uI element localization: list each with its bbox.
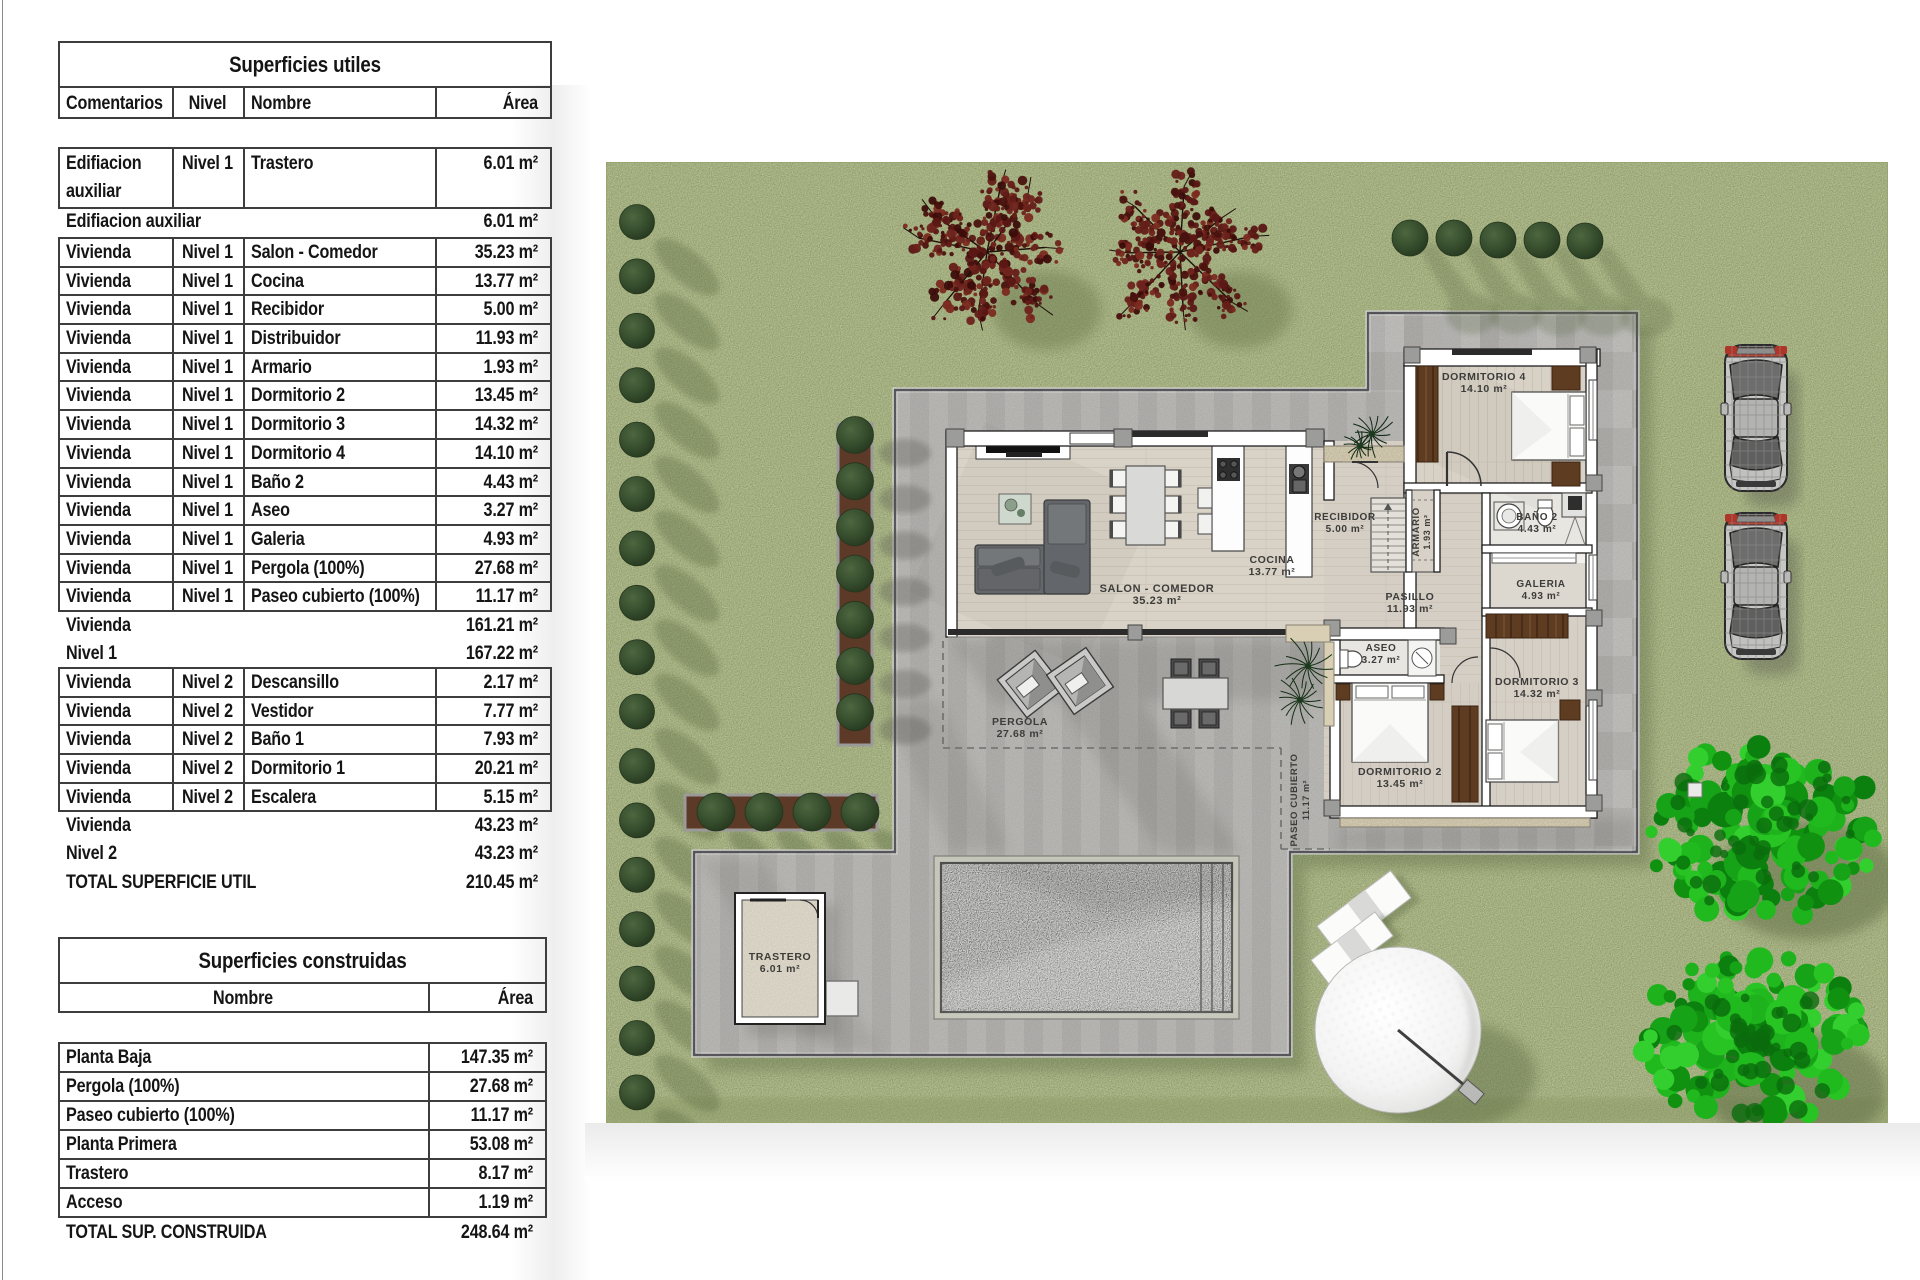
svg-text:GALERIA: GALERIA (1516, 579, 1565, 590)
svg-text:DORMITORIO 3: DORMITORIO 3 (1495, 676, 1579, 688)
svg-text:4.93 m²: 4.93 m² (1522, 591, 1561, 602)
svg-text:14.10 m²: 14.10 m² (1461, 383, 1508, 395)
svg-text:13.45 m²: 13.45 m² (1377, 778, 1424, 790)
svg-text:RECIBIDOR: RECIBIDOR (1314, 512, 1376, 523)
svg-text:5.00 m²: 5.00 m² (1326, 524, 1365, 535)
svg-text:COCINA: COCINA (1249, 554, 1294, 566)
svg-text:ARMARIO: ARMARIO (1411, 507, 1422, 557)
svg-text:4.43 m²: 4.43 m² (1518, 524, 1557, 535)
svg-text:35.23 m²: 35.23 m² (1133, 595, 1182, 607)
svg-text:ASEO: ASEO (1366, 643, 1397, 654)
svg-text:11.93 m²: 11.93 m² (1387, 603, 1433, 615)
svg-text:PASILLO: PASILLO (1386, 591, 1435, 603)
svg-text:3.27 m²: 3.27 m² (1362, 655, 1401, 666)
svg-text:27.68 m²: 27.68 m² (997, 728, 1044, 740)
svg-text:13.77 m²: 13.77 m² (1249, 566, 1296, 578)
svg-text:1.93 m²: 1.93 m² (1422, 514, 1432, 549)
svg-text:SALON - COMEDOR: SALON - COMEDOR (1100, 583, 1215, 595)
svg-text:BAÑO 2: BAÑO 2 (1516, 510, 1557, 523)
svg-text:PASEO CUBIERTO: PASEO CUBIERTO (1289, 753, 1300, 846)
svg-text:DORMITORIO 4: DORMITORIO 4 (1442, 371, 1526, 383)
svg-text:11.17 m²: 11.17 m² (1301, 780, 1311, 820)
svg-text:PERGOLA: PERGOLA (992, 716, 1048, 728)
svg-text:14.32 m²: 14.32 m² (1514, 688, 1561, 700)
svg-text:TRASTERO: TRASTERO (749, 951, 812, 963)
svg-text:6.01 m²: 6.01 m² (760, 963, 800, 975)
svg-text:DORMITORIO 2: DORMITORIO 2 (1358, 766, 1442, 778)
